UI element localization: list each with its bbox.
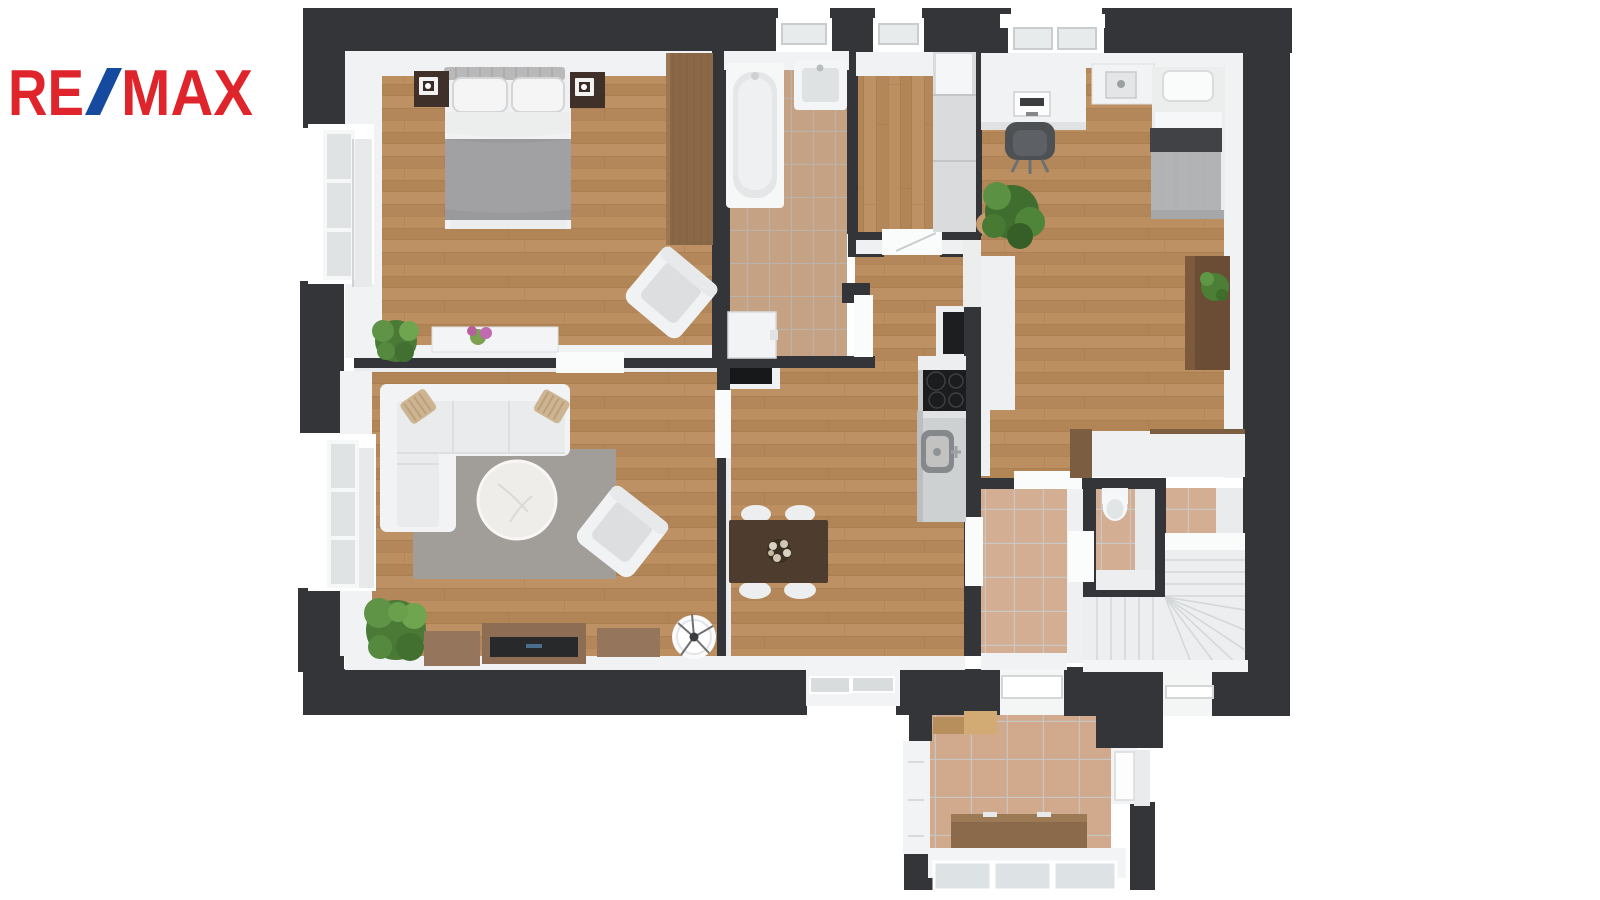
svg-text:RE: RE — [8, 56, 84, 129]
svg-text:MAX: MAX — [121, 56, 253, 129]
